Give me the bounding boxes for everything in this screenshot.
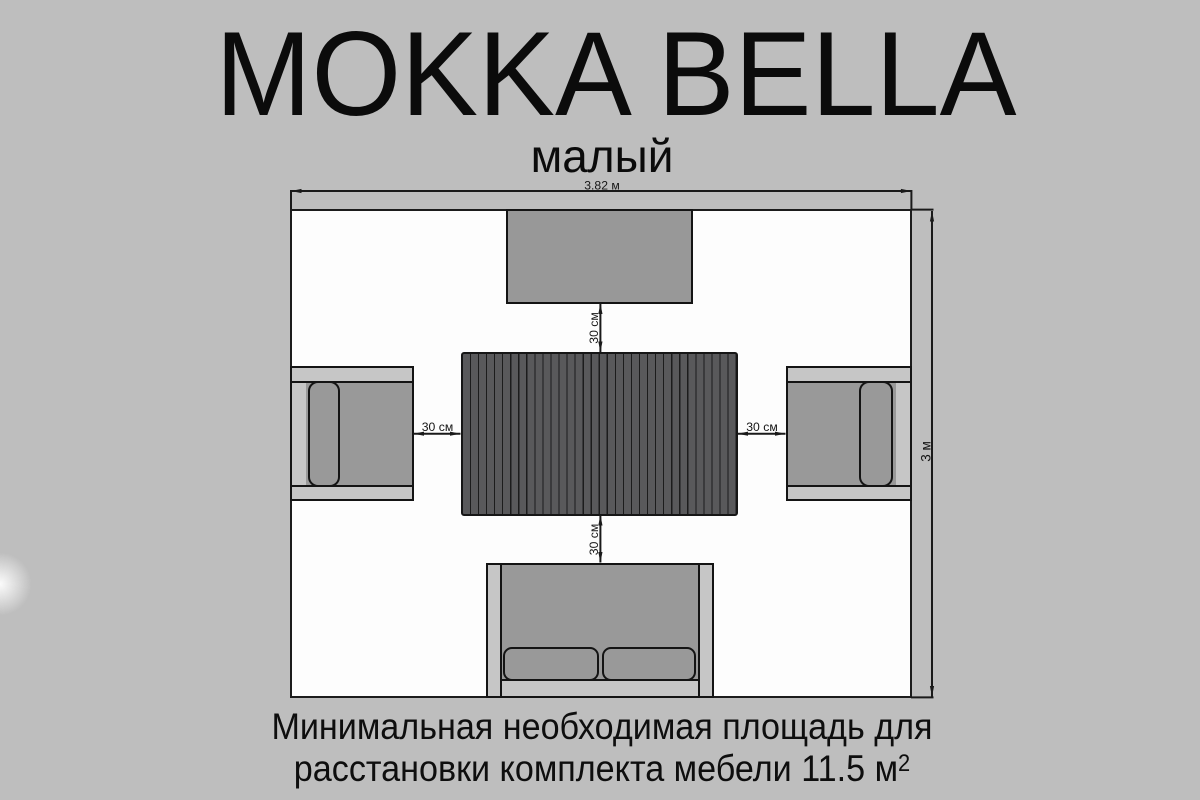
- svg-text:30 см: 30 см: [422, 420, 453, 434]
- svg-text:3.82 м: 3.82 м: [584, 179, 620, 193]
- svg-text:3 м: 3 м: [919, 441, 934, 462]
- svg-text:30 см: 30 см: [587, 312, 601, 343]
- svg-text:30 см: 30 см: [746, 420, 777, 434]
- svg-text:30 см: 30 см: [587, 524, 601, 555]
